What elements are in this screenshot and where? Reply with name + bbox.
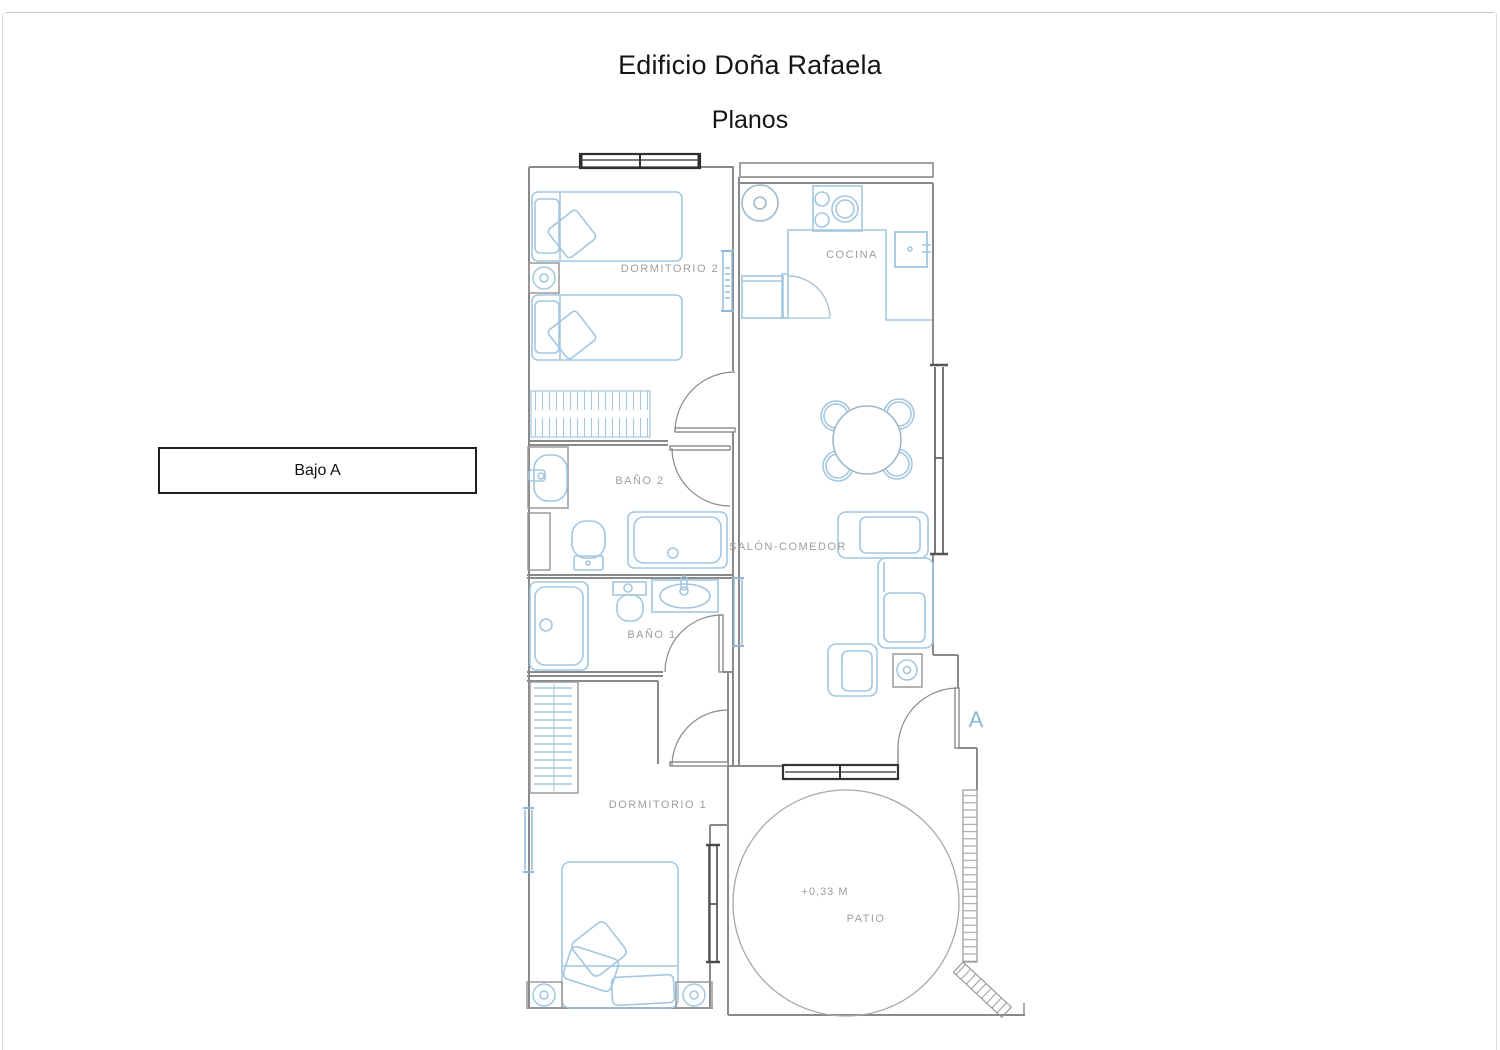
nightstand-lamp-left bbox=[527, 982, 562, 1008]
nightstand-lamp-right bbox=[676, 982, 712, 1008]
bano1-fixtures bbox=[530, 576, 718, 670]
fridge-sink-unit bbox=[895, 232, 931, 267]
bathroom-column bbox=[528, 513, 550, 570]
dining-table bbox=[833, 406, 901, 474]
document-page: Edificio Doña Rafaela Planos Bajo A bbox=[0, 0, 1500, 1050]
bed-single-1 bbox=[532, 192, 682, 261]
label-dormitorio1: DORMITORIO 1 bbox=[609, 799, 707, 811]
section-marker-a: A bbox=[969, 707, 984, 732]
washing-machine bbox=[742, 185, 778, 221]
patio-elements bbox=[733, 790, 1011, 1017]
bano2-fixtures bbox=[528, 447, 727, 570]
window-dormitorio1-patio bbox=[706, 845, 720, 962]
window-salon-patio bbox=[783, 765, 898, 779]
side-table-lamp bbox=[893, 654, 922, 687]
label-cocina: COCINA bbox=[826, 249, 878, 261]
dormitorio2-furniture bbox=[529, 192, 682, 437]
bed-single-2 bbox=[532, 295, 682, 360]
sink-bano1 bbox=[652, 576, 718, 612]
kitchen-counter bbox=[788, 230, 932, 320]
radiator-dormitorio2 bbox=[531, 391, 650, 437]
walls bbox=[527, 163, 1025, 1015]
stove bbox=[813, 186, 862, 231]
kitchen-cabinet bbox=[742, 276, 830, 318]
bed-double bbox=[562, 862, 678, 1008]
sink-bano2 bbox=[529, 455, 567, 501]
sofa-l-shape bbox=[838, 512, 933, 648]
nightstand-lamp bbox=[529, 263, 559, 293]
label-patio-level: +0,33 M bbox=[801, 886, 848, 898]
kitchen-door bbox=[782, 274, 830, 318]
label-bano1: BAÑO 1 bbox=[627, 628, 676, 641]
shower bbox=[530, 582, 588, 670]
bathtub bbox=[628, 512, 727, 568]
radiator-entry-wall bbox=[721, 251, 734, 311]
patio-stair-strip bbox=[963, 790, 977, 962]
doors bbox=[665, 372, 959, 766]
patio-stair-diagonal bbox=[953, 962, 1011, 1017]
toilet-bano1 bbox=[613, 582, 646, 621]
label-dormitorio2: DORMITORIO 2 bbox=[621, 263, 719, 275]
label-salon-comedor: SALÓN-COMEDOR bbox=[729, 540, 847, 553]
label-bano2: BAÑO 2 bbox=[615, 474, 664, 487]
floor-plan-svg: DORMITORIO 2 COCINA BAÑO 2 SALÓN-COMEDOR… bbox=[0, 0, 1500, 1050]
armchair bbox=[828, 644, 877, 696]
patio-circle bbox=[733, 790, 959, 1016]
window-salon-right bbox=[930, 365, 948, 554]
wardrobe bbox=[530, 682, 578, 793]
toilet-bano2 bbox=[572, 521, 605, 570]
label-patio: PATIO bbox=[847, 913, 886, 925]
